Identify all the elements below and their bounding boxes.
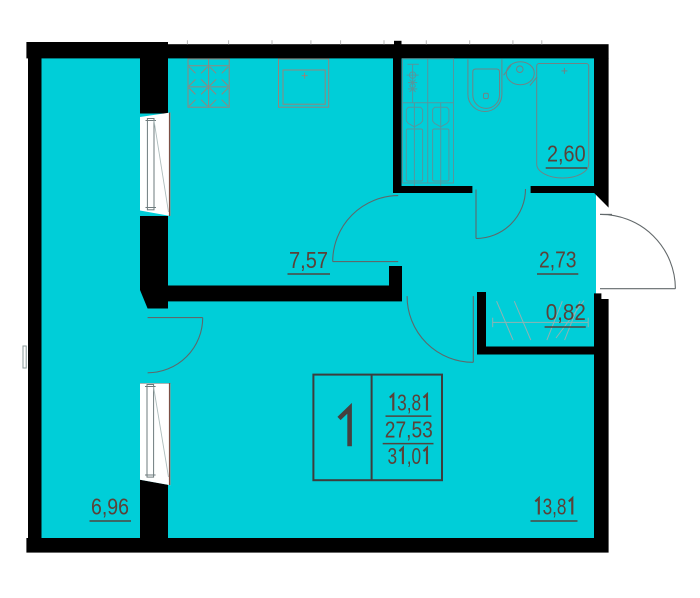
svg-text:3: 3 (388, 443, 398, 469)
svg-text:7,57: 7,57 (289, 247, 328, 273)
svg-text:3: 3 (397, 390, 407, 416)
svg-text:27,53: 27,53 (385, 416, 433, 442)
svg-text:2,60: 2,60 (547, 141, 586, 167)
svg-text:0: 0 (412, 443, 422, 469)
svg-text:6,96: 6,96 (91, 494, 129, 520)
svg-text:2,73: 2,73 (539, 247, 577, 273)
svg-text:3: 3 (543, 494, 553, 520)
svg-text:8: 8 (557, 494, 567, 520)
svg-text:0,82: 0,82 (546, 299, 586, 325)
svg-text:8: 8 (412, 390, 422, 416)
